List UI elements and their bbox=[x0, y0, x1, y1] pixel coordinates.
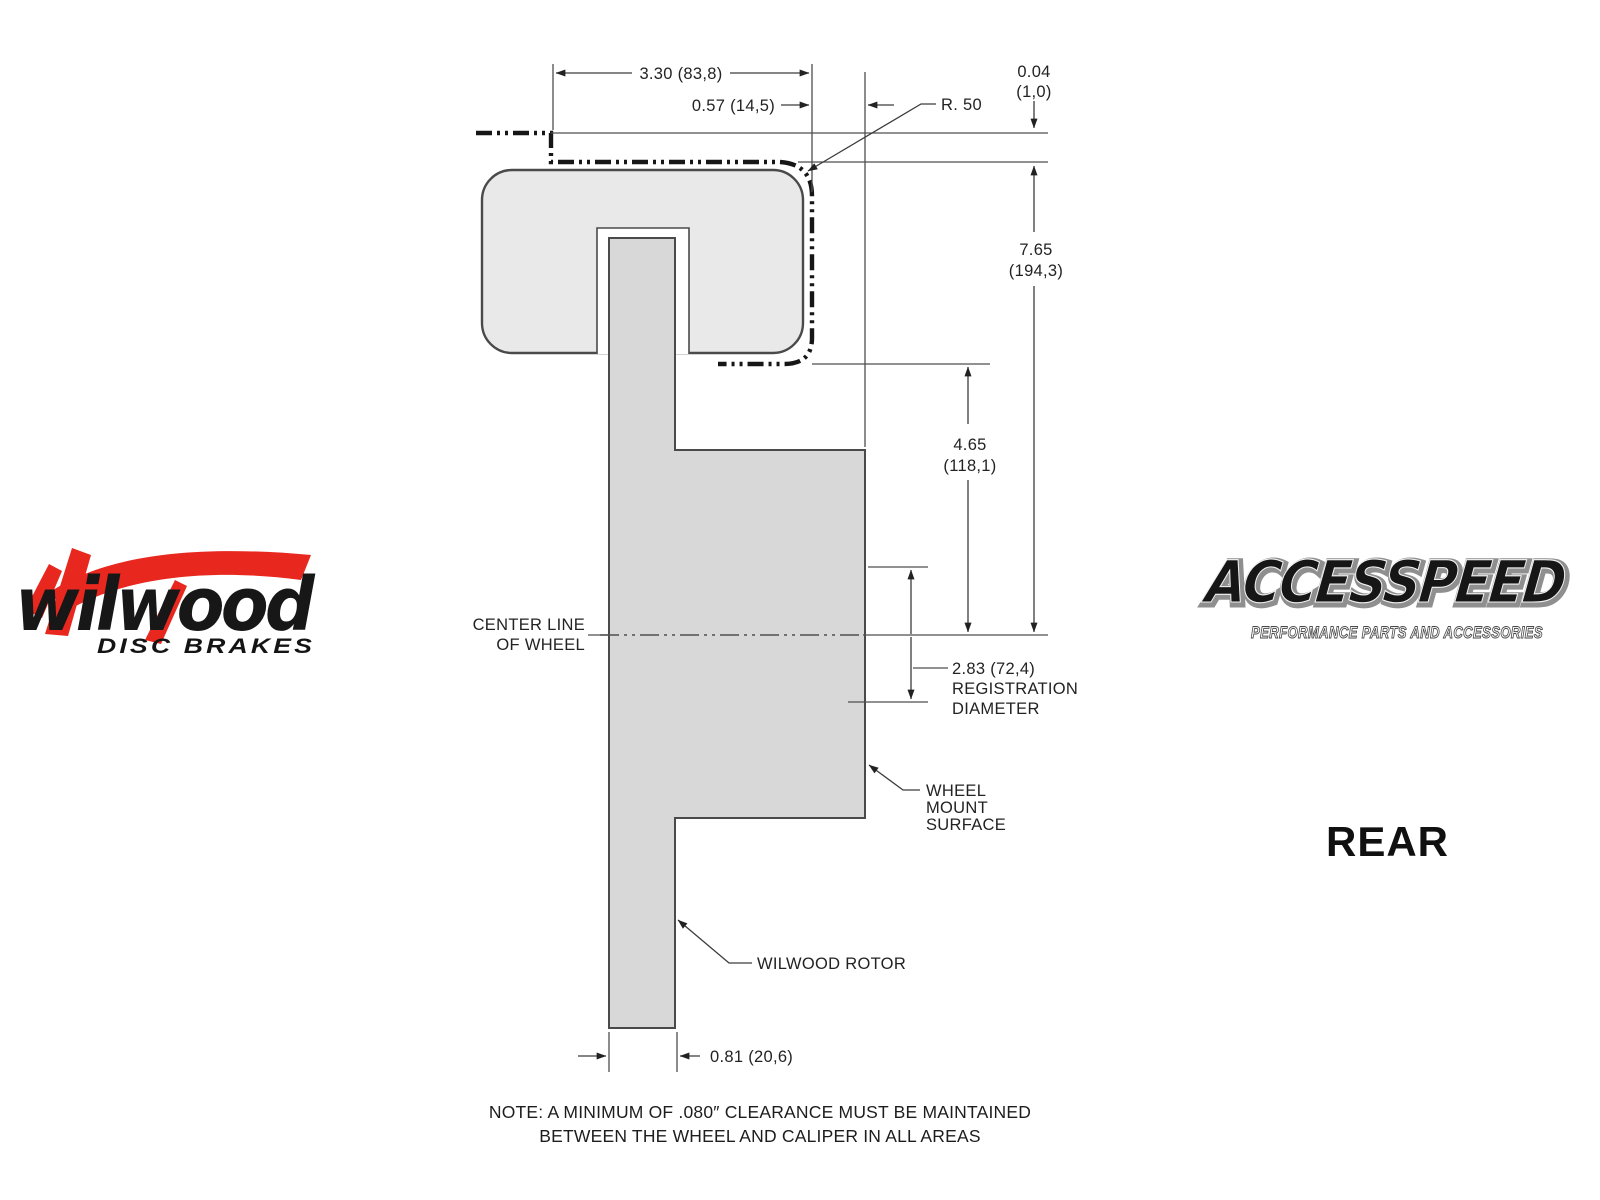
dim-mount-radius-in-text: 4.65 bbox=[953, 436, 986, 454]
note-line1: NOTE: A MINIMUM OF .080″ CLEARANCE MUST … bbox=[489, 1102, 1031, 1122]
dim-wheel-radius-in-text: 7.65 bbox=[1019, 241, 1052, 259]
dim-top-clearance-mm-text: (1,0) bbox=[1016, 83, 1051, 101]
accesspeed-tagline-text: PERFORMANCE PARTS AND ACCESSORIES bbox=[1251, 623, 1543, 642]
rotor-leader-arrow bbox=[678, 920, 752, 963]
dim-registration-word2-text: DIAMETER bbox=[952, 700, 1040, 718]
wilwood-tagline-text: DISC BRAKES bbox=[97, 635, 315, 658]
rotor-callout-text: WILWOOD ROTOR bbox=[757, 955, 906, 973]
wheel-mount-label-line1: WHEEL bbox=[926, 782, 986, 800]
wheel-mount-leader-arrow bbox=[869, 765, 920, 790]
radius-leader-arrow bbox=[808, 104, 936, 171]
dim-mount-radius-mm-text: (118,1) bbox=[943, 457, 996, 475]
brake-clearance-diagram-page: 3.30 (83,8) 0.57 (14,5) R. 50 0.04 (1,0)… bbox=[0, 0, 1600, 1200]
diagram-svg: 3.30 (83,8) 0.57 (14,5) R. 50 0.04 (1,0)… bbox=[0, 0, 1600, 1200]
dim-registration-value-text: 2.83 (72,4) bbox=[952, 660, 1035, 678]
view-label-rear: REAR bbox=[1326, 818, 1449, 865]
dim-registration-word1-text: REGISTRATION bbox=[952, 680, 1078, 698]
dim-overall-width-text: 3.30 (83,8) bbox=[639, 65, 722, 83]
dim-mount-to-face-text: 0.57 (14,5) bbox=[692, 97, 775, 115]
dim-rotor-thickness-text: 0.81 (20,6) bbox=[710, 1048, 793, 1066]
wheel-mount-label-line3: SURFACE bbox=[926, 816, 1006, 834]
brake-cross-section bbox=[476, 133, 865, 1028]
rotor-and-hat-section bbox=[609, 238, 865, 1028]
dim-wheel-radius-mm-text: (194,3) bbox=[1009, 262, 1063, 280]
accesspeed-brand-text: ACCESSPEED bbox=[1199, 548, 1568, 616]
wilwood-logo: wilwood DISC BRAKES bbox=[15, 548, 316, 658]
note-line2: BETWEEN THE WHEEL AND CALIPER IN ALL ARE… bbox=[539, 1126, 981, 1146]
dim-corner-radius-text: R. 50 bbox=[941, 96, 982, 114]
clearance-note: NOTE: A MINIMUM OF .080″ CLEARANCE MUST … bbox=[489, 1102, 1031, 1146]
centerline-label-line2: OF WHEEL bbox=[496, 636, 585, 654]
accesspeed-logo: ACCESSPEED ACCESSPEED PERFORMANCE PARTS … bbox=[1199, 548, 1569, 642]
wheel-mount-label-line2: MOUNT bbox=[926, 799, 988, 817]
dim-top-clearance-in-text: 0.04 bbox=[1017, 63, 1050, 81]
centerline-label-line1: CENTER LINE bbox=[473, 616, 585, 634]
